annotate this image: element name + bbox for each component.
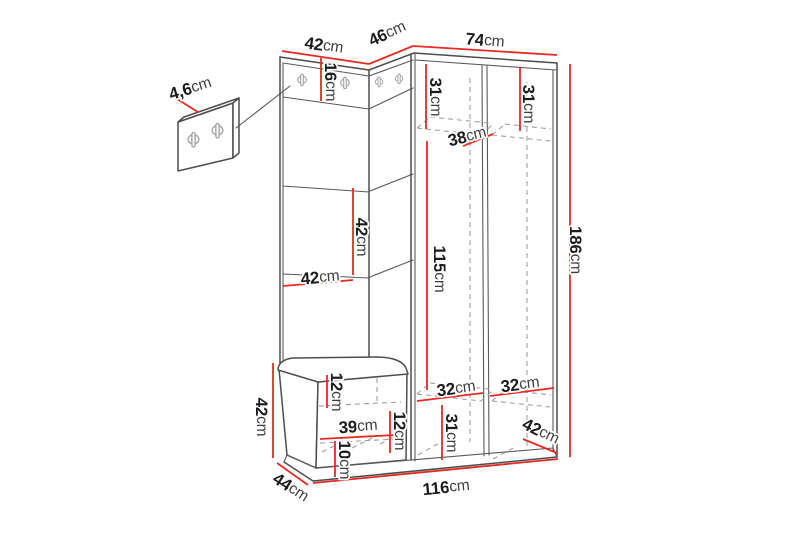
dim-label-panel-width: 42cm [300, 266, 340, 288]
dim-label-wardrobe-depth: 42cm [519, 414, 562, 448]
dim-label-interior-depth: 38cm [446, 122, 488, 150]
dim-label-hanging-height: 115cm [431, 245, 450, 292]
dim-label-bottom-comp: 31cm [443, 414, 462, 453]
dim-label-left-width: 42cm [303, 33, 344, 57]
dim-label-seat-height: 12cm [328, 373, 347, 412]
diagram-canvas: 4,6cm 42cm 46cm 74cm 16cm 31cm 31cm 38cm… [0, 0, 800, 533]
furniture-dimension-diagram: 4,6cm 42cm 46cm 74cm 16cm 31cm 31cm 38cm… [0, 0, 800, 533]
dim-label-left-col-top: 31cm [427, 78, 446, 117]
coat-hook-icon [395, 74, 402, 84]
hook-strip-bottom-corner [369, 88, 413, 109]
coat-hook-icon [375, 77, 382, 87]
dim-label-detail-thickness: 4,6cm [167, 73, 214, 104]
dim-label-right-col-width: 32cm [500, 372, 541, 396]
dim-label-corner-width: 46cm [365, 16, 408, 49]
dim-line-detail-thickness [177, 99, 198, 112]
dim-label-tile-height: 42cm [353, 218, 372, 257]
plinth-left-cap [284, 455, 287, 462]
wardrobe-divider-right [487, 66, 489, 455]
coat-hook-icon [341, 77, 350, 89]
panel-divider-1 [283, 186, 369, 192]
coat-hook-icon [298, 74, 307, 86]
dim-label-bench-height: 42cm [253, 398, 272, 437]
corner-hook-panel [369, 53, 414, 277]
dim-label-right-col-top: 31cm [520, 85, 539, 124]
dim-label-bottom-gap: 10cm [336, 441, 355, 480]
dimension-labels: 4,6cm 42cm 46cm 74cm 16cm 31cm 31cm 38cm… [167, 16, 586, 505]
corner-divider-1 [370, 174, 413, 191]
detail-hook-panel [178, 86, 290, 171]
left-hook-panel [280, 57, 369, 370]
bench-left-face [279, 369, 318, 468]
dim-label-wardrobe-width: 74cm [465, 29, 505, 51]
dim-label-bench-right: 12cm [391, 412, 410, 451]
dim-label-total-height: 186cm [567, 226, 586, 274]
detail-pointer-line [236, 86, 290, 128]
corner-divider-2 [370, 260, 413, 277]
dim-label-total-width: 116cm [422, 475, 471, 498]
dim-label-hook-strip: 16cm [322, 63, 341, 102]
